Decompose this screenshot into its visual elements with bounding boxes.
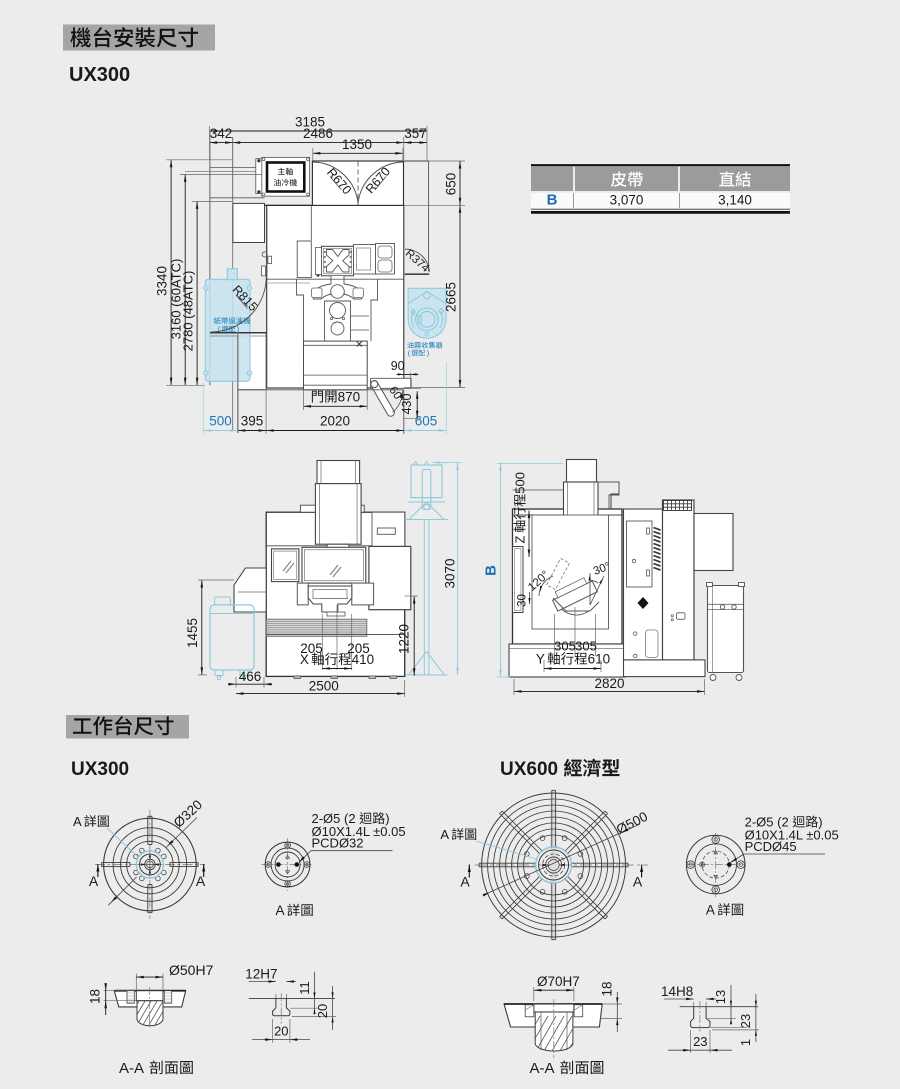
svg-text:3340: 3340	[155, 266, 170, 296]
svg-text:2500: 2500	[309, 679, 339, 694]
svg-text:305: 305	[554, 639, 576, 654]
svg-text:3070: 3070	[443, 558, 458, 588]
svg-text:13: 13	[713, 990, 728, 1004]
svg-text:A: A	[89, 873, 99, 889]
svg-text:Z: Z	[513, 536, 528, 544]
svg-text:610: 610	[588, 652, 611, 667]
svg-text:A: A	[196, 873, 206, 889]
svg-text:A: A	[73, 814, 82, 829]
svg-text:B: B	[483, 565, 500, 576]
svg-text:30: 30	[517, 594, 529, 607]
svg-text:2020: 2020	[320, 414, 350, 429]
svg-text:PCDØ45: PCDØ45	[745, 839, 797, 854]
svg-text:B: B	[547, 192, 558, 209]
svg-text:2780 (48ATC): 2780 (48ATC)	[181, 271, 196, 352]
svg-text:2665: 2665	[443, 282, 458, 312]
svg-text:395: 395	[241, 414, 264, 429]
svg-text:357: 357	[404, 126, 427, 141]
svg-text:870: 870	[338, 390, 361, 405]
svg-text:2820: 2820	[594, 676, 624, 691]
svg-text:A-A: A-A	[119, 1060, 144, 1077]
svg-text:A: A	[276, 903, 285, 918]
svg-text:23: 23	[693, 1034, 707, 1049]
svg-text:1350: 1350	[342, 137, 372, 152]
svg-text:430: 430	[400, 394, 414, 415]
svg-text:3,140: 3,140	[718, 193, 752, 208]
svg-text:90: 90	[391, 359, 405, 373]
svg-text:Y: Y	[536, 652, 545, 667]
svg-text:X: X	[300, 652, 309, 667]
svg-text:UX300: UX300	[71, 759, 129, 780]
svg-text:605: 605	[415, 414, 438, 429]
svg-text:18: 18	[599, 981, 614, 996]
svg-text:410: 410	[352, 652, 375, 667]
svg-text:1455: 1455	[185, 618, 200, 648]
svg-text:12H7: 12H7	[245, 967, 277, 982]
svg-text:500: 500	[513, 472, 528, 494]
svg-text:UX600: UX600	[500, 759, 558, 780]
svg-text:A: A	[706, 903, 715, 918]
svg-text:342: 342	[210, 126, 233, 141]
svg-text:23: 23	[738, 1014, 753, 1028]
svg-text:1220: 1220	[397, 624, 412, 654]
svg-text:20: 20	[315, 1004, 330, 1018]
svg-text:11: 11	[297, 981, 312, 995]
svg-text:500: 500	[209, 414, 232, 429]
svg-text:2486: 2486	[303, 126, 333, 141]
svg-text:Ø50H7: Ø50H7	[169, 962, 214, 978]
svg-text:20: 20	[274, 1024, 288, 1039]
svg-text:650: 650	[443, 173, 458, 196]
svg-text:A: A	[460, 874, 470, 890]
svg-text:1: 1	[738, 1039, 753, 1046]
svg-text:14H8: 14H8	[661, 984, 693, 999]
svg-text:18: 18	[88, 989, 103, 1004]
svg-text:UX300: UX300	[69, 64, 130, 86]
svg-text:466: 466	[239, 669, 262, 684]
svg-text:PCDØ32: PCDØ32	[312, 836, 364, 851]
svg-text:Ø70H7: Ø70H7	[537, 974, 580, 989]
svg-text:3,070: 3,070	[610, 193, 644, 208]
svg-text:): )	[427, 348, 429, 357]
svg-text:A: A	[633, 874, 643, 890]
svg-text:A-A: A-A	[530, 1060, 555, 1077]
svg-text:A: A	[440, 827, 449, 842]
